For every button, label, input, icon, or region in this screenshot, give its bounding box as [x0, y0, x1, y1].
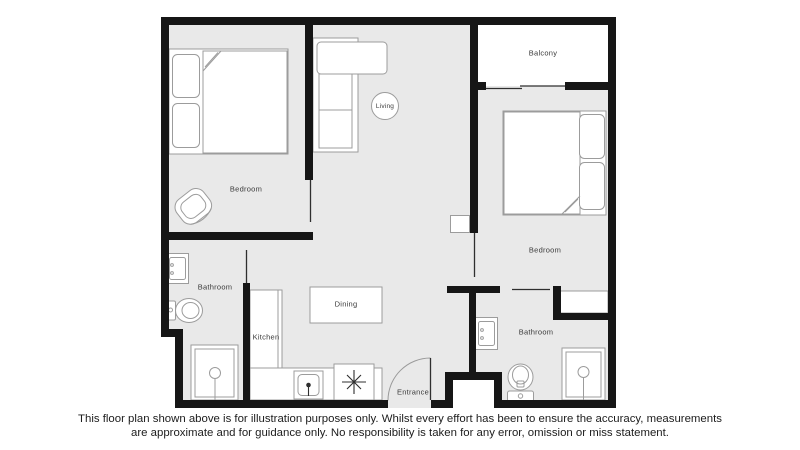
bed-1-pillow [173, 104, 200, 148]
room-label-dining: Dining [335, 300, 358, 309]
room-label-kitchen: Kitchen [253, 333, 280, 342]
room-label-balcony: Balcony [529, 49, 557, 58]
sink-2-basin [479, 322, 495, 346]
wall-living-bedroom2 [470, 17, 478, 233]
toilet-1-seat [182, 303, 199, 319]
stove-hob-center [353, 381, 356, 384]
sofa-seat [319, 74, 352, 148]
room-label-bathroom-1: Bathroom [198, 283, 233, 292]
wall-bedroom1-right [305, 17, 313, 180]
wall-kitchen-bathroom1 [243, 283, 250, 400]
sink-1-basin [170, 258, 186, 280]
kitchen-counter-vertical [250, 290, 282, 368]
toilet-2-cistern [508, 391, 534, 402]
disclaimer-line-1: This floor plan shown above is for illus… [0, 412, 800, 426]
bed-2 [503, 111, 606, 215]
bedroom2-wardrobe [560, 291, 608, 313]
wall-wardrobe-bottom [553, 313, 616, 320]
kitchen-sink-tap [306, 383, 311, 388]
bed-1 [169, 49, 288, 154]
room-label-entrance: Entrance [397, 388, 429, 397]
hall-cabinet [451, 216, 470, 233]
wall-left-lower [175, 329, 183, 408]
bed-2-pillow [580, 163, 605, 210]
wall-bedroom1-bottom [161, 232, 313, 240]
wall-notch-top [445, 372, 502, 380]
disclaimer-text: This floor plan shown above is for illus… [0, 412, 800, 440]
wall-bathroom2-left [469, 286, 476, 373]
bed-2-mattress [504, 112, 580, 214]
floor-plan-page: Bedroom Living Balcony Bedroom Bathroom … [0, 0, 800, 450]
wall-bottom-left [175, 400, 388, 408]
room-label-bathroom-2: Bathroom [519, 328, 554, 337]
disclaimer-line-2: are approximate and for guidance only. N… [0, 426, 800, 440]
room-label-bedroom-2: Bedroom [529, 246, 561, 255]
floor-plan-drawing [0, 0, 800, 450]
bed-2-pillow [580, 115, 605, 159]
wall-top [161, 17, 616, 25]
room-label-living: Living [371, 92, 399, 120]
wall-right [608, 17, 616, 408]
bed-1-mattress [203, 51, 287, 153]
sofa-chaise [317, 42, 387, 74]
room-label-bedroom-1: Bedroom [230, 185, 262, 194]
bed-1-pillow [173, 55, 200, 98]
wall-bottom-right [494, 400, 616, 408]
wall-left-upper [161, 17, 169, 337]
wall-balcony-bottom [565, 82, 616, 90]
